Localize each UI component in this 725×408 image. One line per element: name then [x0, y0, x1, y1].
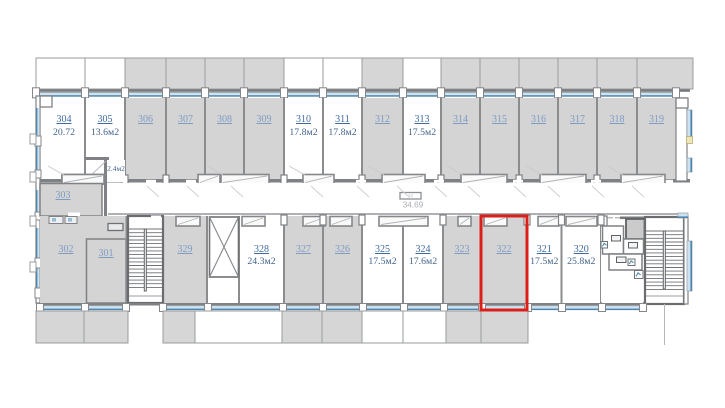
- svg-text:310: 310: [296, 114, 311, 125]
- svg-text:316: 316: [531, 114, 546, 125]
- svg-text:314: 314: [453, 114, 468, 125]
- svg-text:317: 317: [570, 114, 585, 125]
- svg-text:322: 322: [497, 244, 512, 255]
- svg-text:318: 318: [610, 114, 625, 125]
- svg-text:325: 325: [375, 244, 390, 255]
- svg-text:305: 305: [98, 114, 113, 125]
- svg-text:307: 307: [178, 114, 193, 125]
- svg-text:20.72: 20.72: [53, 127, 75, 138]
- svg-text:312: 312: [375, 114, 390, 125]
- svg-text:24.3м2: 24.3м2: [247, 256, 275, 267]
- svg-text:17.5м2: 17.5м2: [408, 127, 436, 138]
- svg-text:17.8м2: 17.8м2: [328, 127, 356, 138]
- svg-text:327: 327: [296, 244, 311, 255]
- svg-text:17.8м2: 17.8м2: [289, 127, 317, 138]
- svg-text:320: 320: [574, 244, 589, 255]
- svg-text:311: 311: [335, 114, 350, 125]
- svg-text:34.69: 34.69: [403, 201, 424, 210]
- svg-text:323: 323: [455, 244, 470, 255]
- svg-text:321: 321: [537, 244, 552, 255]
- svg-text:308: 308: [217, 114, 232, 125]
- svg-text:329: 329: [178, 244, 193, 255]
- svg-text:17.5м2: 17.5м2: [530, 256, 558, 267]
- svg-text:326: 326: [335, 244, 350, 255]
- svg-text:301: 301: [99, 248, 114, 259]
- svg-text:304: 304: [57, 114, 72, 125]
- svg-text:2.4м2: 2.4м2: [107, 164, 125, 173]
- svg-text:303: 303: [56, 190, 71, 201]
- svg-text:302: 302: [59, 244, 74, 255]
- svg-text:25.8м2: 25.8м2: [567, 256, 595, 267]
- svg-text:313: 313: [415, 114, 430, 125]
- svg-text:17.5м2: 17.5м2: [368, 256, 396, 267]
- svg-text:319: 319: [649, 114, 664, 125]
- svg-text:315: 315: [492, 114, 507, 125]
- svg-text:306: 306: [138, 114, 153, 125]
- svg-text:17.6м2: 17.6м2: [409, 256, 437, 267]
- svg-text:324: 324: [416, 244, 431, 255]
- svg-text:328: 328: [254, 244, 269, 255]
- svg-text:13.6м2: 13.6м2: [91, 127, 119, 138]
- svg-text:309: 309: [257, 114, 272, 125]
